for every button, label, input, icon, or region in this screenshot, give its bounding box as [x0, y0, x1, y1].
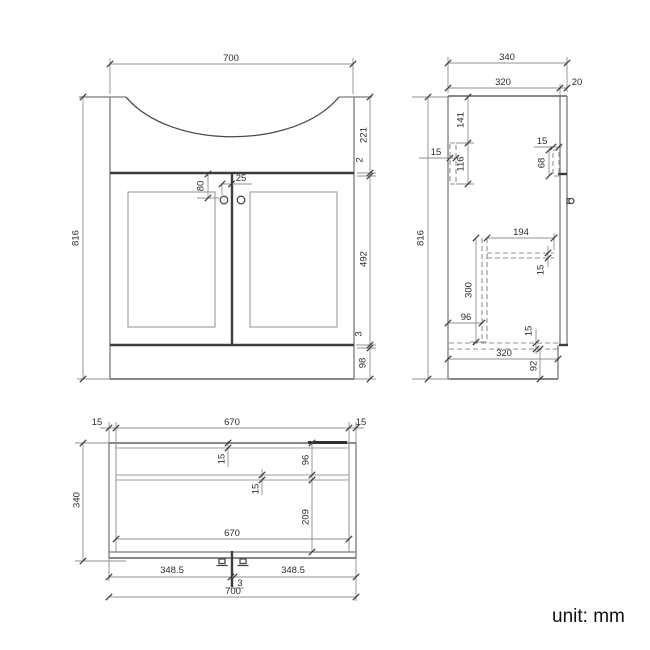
dim-plan-depth: 340 [72, 492, 83, 508]
dim-divider-offset: 96 [461, 312, 472, 323]
basin-curve [126, 97, 339, 137]
left-door-panel [128, 192, 215, 327]
drawing-page: 700 816 221 2 492 3 98 80 [0, 0, 650, 650]
dim-hinge-width: 15 [431, 147, 442, 158]
side-knob [569, 199, 574, 204]
plan-left-knob [217, 559, 228, 566]
right-door-panel [250, 192, 337, 327]
side-view: 340 320 20 816 141 116 15 [412, 52, 582, 382]
dim-front-width: 700 [223, 53, 239, 64]
dim-left-wall: 15 [92, 417, 103, 428]
dim-hinge-top-offset: 141 [456, 112, 467, 128]
dim-plan-width: 700 [225, 586, 241, 597]
dim-right-door: 348.5 [281, 565, 305, 576]
dim-bottom-depth: 320 [496, 348, 512, 359]
hinge-plate-front [553, 150, 559, 176]
right-knob [237, 196, 245, 204]
dim-hinge-height: 116 [456, 156, 467, 171]
dim-side-height: 816 [416, 230, 427, 246]
front-view-doors [128, 174, 337, 344]
dim-shelf-thickness-side: 15 [536, 265, 547, 276]
dim-knob-drop: 80 [196, 181, 207, 192]
dim-knob-offset: 25 [236, 173, 247, 184]
dim-bottom-gap: 3 [354, 331, 365, 336]
dim-side-depth: 340 [499, 52, 515, 63]
dim-basin-height: 221 [359, 127, 370, 143]
dim-counter-gap: 2 [355, 157, 366, 162]
plan-view-outline [109, 443, 356, 588]
dim-shelf-width: 670 [224, 528, 240, 539]
dim-inner-width: 670 [224, 417, 240, 428]
vanity-dimension-drawing: 700 816 221 2 492 3 98 80 [0, 0, 650, 650]
left-knob [220, 196, 228, 204]
side-view-dimensions: 340 320 20 816 141 116 15 [412, 52, 582, 382]
plan-right-knob [238, 559, 249, 566]
front-view-dimensions: 700 816 221 2 492 3 98 80 [71, 53, 377, 382]
dim-right-wall: 15 [356, 417, 367, 428]
plan-view: 15 670 15 340 15 15 96 209 670 [72, 417, 367, 601]
dim-front-height: 816 [71, 230, 82, 246]
front-view: 700 816 221 2 492 3 98 80 [71, 53, 377, 382]
dim-back-thickness: 15 [217, 454, 228, 465]
unit-label: unit: mm [552, 606, 625, 627]
dim-left-door: 348.5 [160, 565, 184, 576]
dim-divider-height: 300 [464, 282, 475, 298]
dim-shelf-depth: 194 [513, 227, 529, 238]
dim-body-depth: 320 [495, 77, 511, 88]
dim-bottom-thickness: 15 [524, 326, 535, 337]
dim-door-height: 492 [359, 251, 370, 267]
dim-front-plate-height: 68 [537, 158, 548, 169]
dim-front-plate-width: 15 [537, 136, 548, 147]
dim-shelf-thickness-plan: 15 [251, 484, 262, 495]
dim-back-offset: 96 [301, 455, 312, 466]
dim-plinth-height-side: 92 [529, 361, 540, 372]
dim-door-thickness: 20 [572, 77, 583, 88]
dim-plinth-height: 98 [358, 358, 369, 369]
dim-front-offset: 209 [301, 509, 312, 525]
front-view-outline [79, 97, 372, 379]
